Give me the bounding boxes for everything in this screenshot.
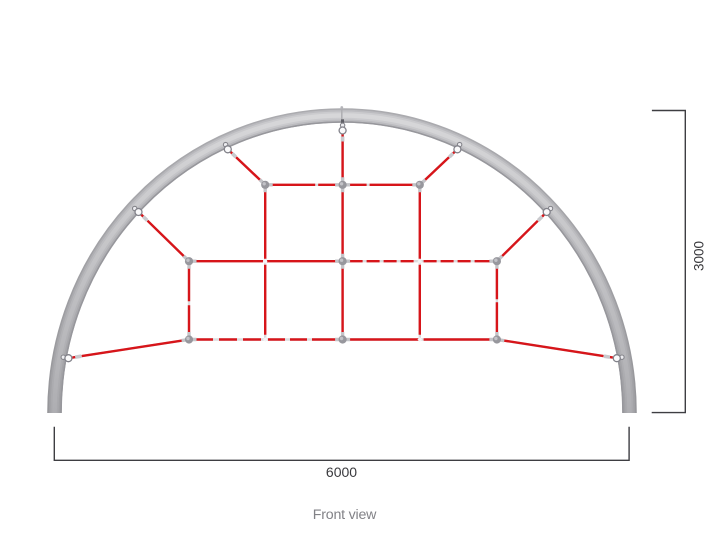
svg-text:Front view: Front view — [313, 507, 377, 523]
svg-text:3000: 3000 — [692, 241, 707, 271]
svg-text:6000: 6000 — [326, 464, 357, 480]
